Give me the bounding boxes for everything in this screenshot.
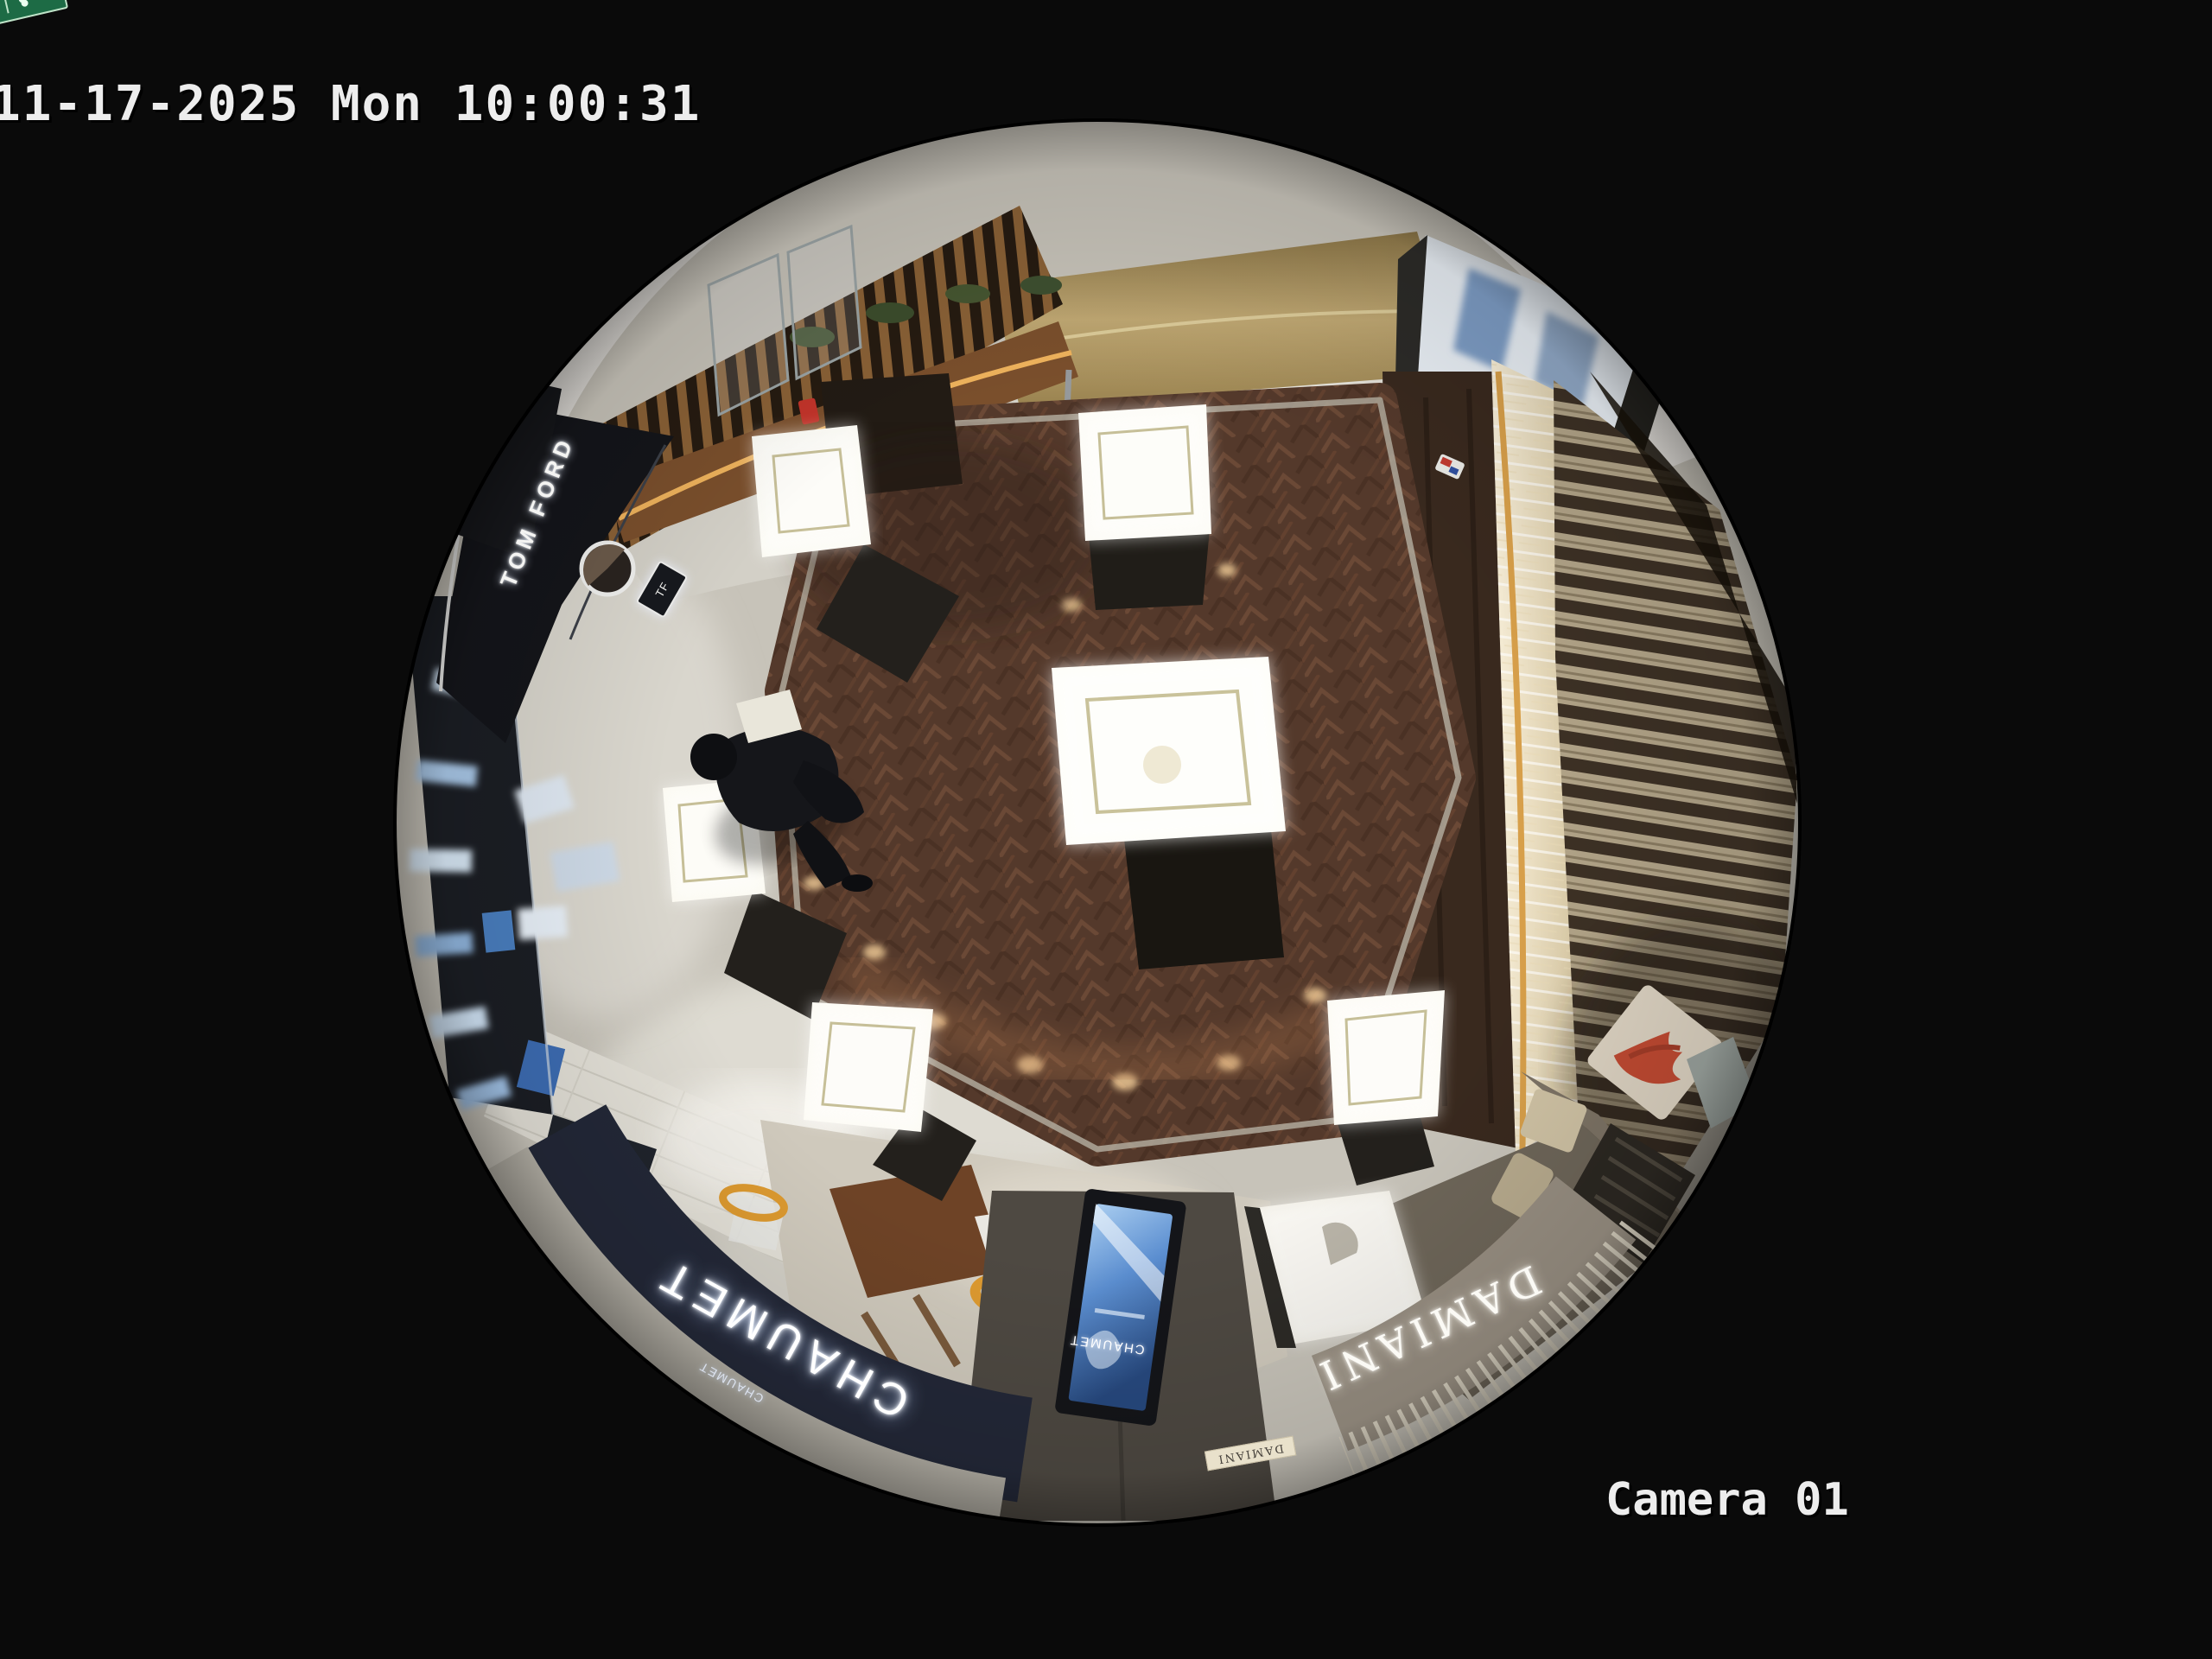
- osd-timestamp: 11-17-2025 Mon 10:00:31: [0, 76, 701, 132]
- exit-running-man-icon: [10, 0, 37, 10]
- cctv-frame: 11-17-2025 Mon 10:00:31 Camera 01 CHAUME…: [0, 0, 2212, 1659]
- lens-vignette: [396, 121, 1799, 1524]
- osd-camera-label: Camera 01: [1605, 1474, 1849, 1526]
- fisheye-view: [0, 0, 2212, 1659]
- exit-sign-divider: [1, 0, 10, 13]
